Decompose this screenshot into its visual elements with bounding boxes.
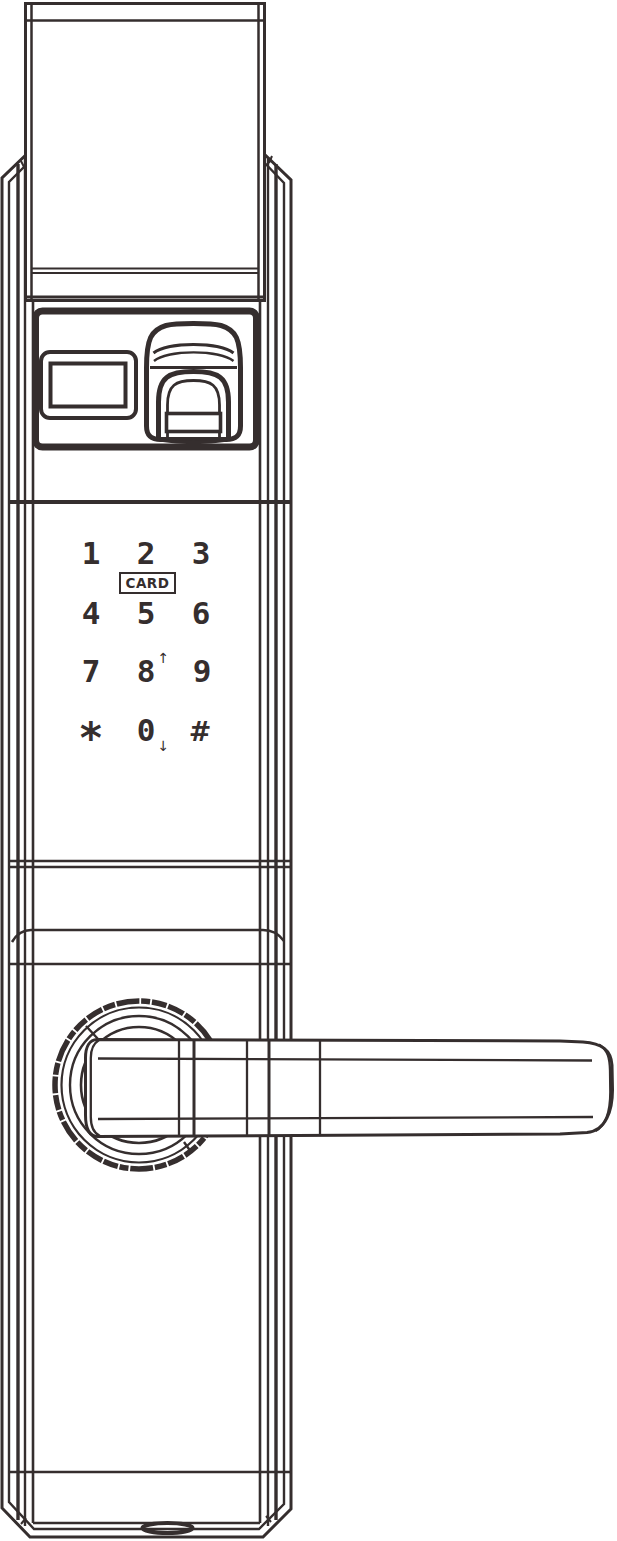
key-2: 2 (137, 538, 156, 569)
keypad: 1 2 3 4 5 6 7 8 ↑ 9 * 0 ↓ # CARD (0, 0, 617, 1541)
key-label: 9 (193, 653, 212, 689)
key-label: 6 (192, 595, 211, 631)
key-label: 2 (137, 535, 156, 571)
key-1: 1 (82, 538, 101, 569)
key-label: 4 (82, 595, 101, 631)
key-0: 0 ↓ (137, 715, 156, 746)
key-label: 5 (137, 595, 156, 631)
up-arrow-icon: ↑ (158, 651, 170, 665)
key-label: 7 (82, 653, 101, 689)
key-hash: # (189, 718, 212, 745)
key-4: 4 (82, 598, 101, 629)
card-key-label: CARD (126, 575, 170, 591)
key-star: * (78, 718, 103, 760)
key-3: 3 (192, 538, 211, 569)
key-7: 7 (82, 656, 101, 687)
key-label: 3 (192, 535, 211, 571)
key-label: 8 (137, 653, 156, 689)
card-key: CARD (119, 572, 176, 594)
key-6: 6 (192, 598, 211, 629)
key-label: * (78, 714, 103, 763)
smart-lock-line-drawing: 1 2 3 4 5 6 7 8 ↑ 9 * 0 ↓ # CARD (0, 0, 617, 1541)
key-5: 5 (137, 598, 156, 629)
key-9: 9 (193, 656, 212, 687)
down-arrow-icon: ↓ (158, 739, 170, 753)
key-8: 8 ↑ (137, 656, 156, 687)
key-label: 0 (137, 712, 156, 748)
key-label: 1 (82, 535, 101, 571)
key-label: # (189, 716, 212, 747)
